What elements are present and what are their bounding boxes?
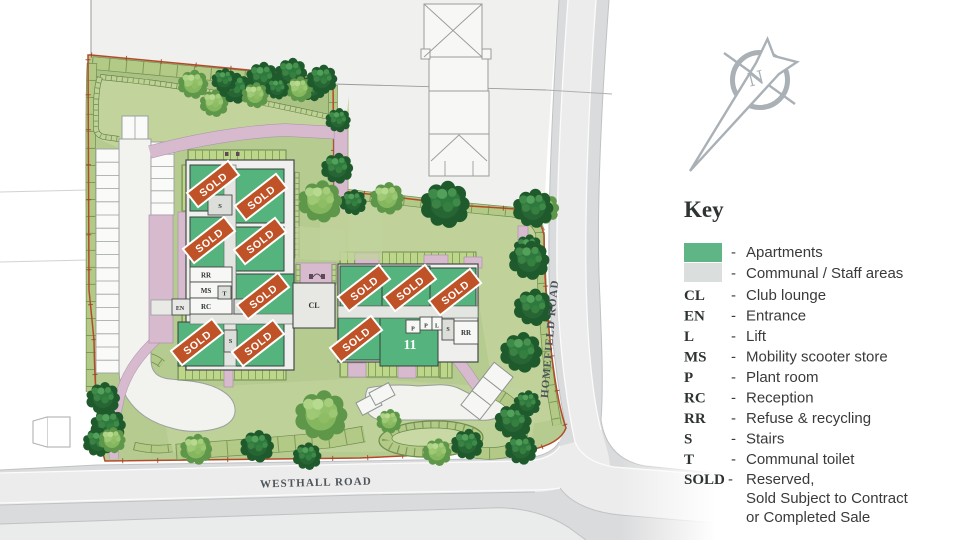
svg-text:MS: MS <box>201 287 212 295</box>
svg-text:CL: CL <box>308 301 319 310</box>
svg-text:EN: EN <box>684 309 705 325</box>
svg-text:EN: EN <box>176 306 185 312</box>
svg-text:-: - <box>731 328 736 345</box>
svg-text:-: - <box>731 244 736 261</box>
svg-text:-: - <box>731 287 736 304</box>
svg-text:P: P <box>684 370 693 386</box>
svg-text:-: - <box>731 431 736 448</box>
svg-text:Entrance: Entrance <box>746 308 806 325</box>
svg-text:-: - <box>731 265 736 282</box>
svg-text:CL: CL <box>684 288 705 304</box>
svg-text:Reception: Reception <box>746 390 814 407</box>
svg-text:Plant room: Plant room <box>746 369 819 386</box>
svg-text:S: S <box>218 203 222 210</box>
svg-text:P: P <box>411 327 415 333</box>
svg-text:SOLD: SOLD <box>684 472 725 488</box>
svg-text:-: - <box>731 308 736 325</box>
svg-text:-: - <box>731 410 736 427</box>
svg-text:Communal / Staff areas: Communal / Staff areas <box>746 265 903 282</box>
svg-text:-: - <box>731 451 736 468</box>
svg-text:Lift: Lift <box>746 328 767 345</box>
svg-text:RC: RC <box>684 391 706 407</box>
svg-text:L: L <box>684 329 694 345</box>
svg-text:Sold Subject to Contract: Sold Subject to Contract <box>746 490 909 507</box>
svg-text:S: S <box>229 338 233 345</box>
svg-text:P: P <box>424 324 428 330</box>
svg-text:-: - <box>731 349 736 366</box>
svg-text:T: T <box>684 452 694 468</box>
svg-text:T: T <box>222 292 226 298</box>
svg-text:-: - <box>731 390 736 407</box>
svg-text:RR: RR <box>684 411 706 427</box>
svg-text:-: - <box>728 471 733 488</box>
svg-text:L: L <box>435 324 439 330</box>
svg-text:-: - <box>731 369 736 386</box>
svg-text:Club lounge: Club lounge <box>746 287 826 304</box>
svg-text:RR: RR <box>461 329 472 337</box>
svg-text:Apartments: Apartments <box>746 244 823 261</box>
svg-text:Key: Key <box>684 197 724 222</box>
svg-text:Mobility scooter store: Mobility scooter store <box>746 349 888 366</box>
svg-text:or Completed Sale: or Completed Sale <box>746 509 870 526</box>
svg-text:RR: RR <box>201 272 212 280</box>
svg-text:Stairs: Stairs <box>746 431 784 448</box>
svg-text:MS: MS <box>684 350 707 366</box>
svg-text:S: S <box>684 432 692 448</box>
svg-text:Communal toilet: Communal toilet <box>746 451 855 468</box>
svg-text:Reserved,: Reserved, <box>746 471 814 488</box>
svg-text:Refuse & recycling: Refuse & recycling <box>746 410 871 427</box>
svg-text:11: 11 <box>404 337 417 352</box>
svg-text:RC: RC <box>201 303 211 311</box>
